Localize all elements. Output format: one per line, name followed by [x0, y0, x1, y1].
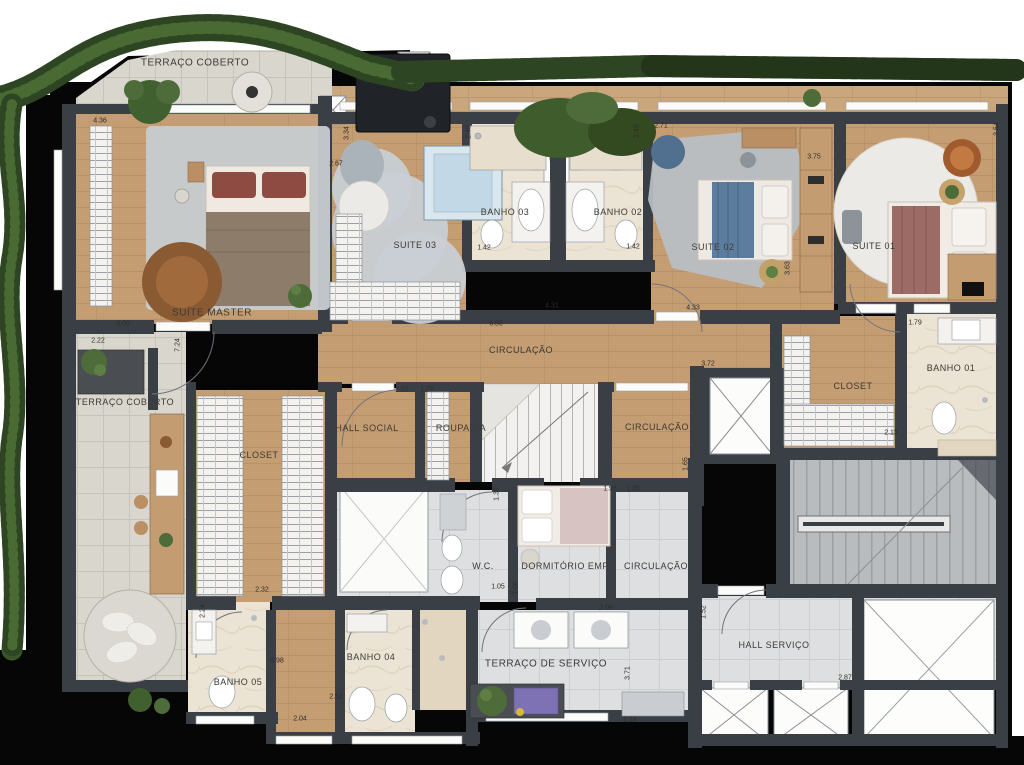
floor-plan: TERRAÇO COBERTOSUÍTE MASTERSUITE 03BANHO… [0, 0, 1024, 765]
armchair [651, 135, 685, 169]
pillow [212, 172, 256, 198]
wardrobe [330, 282, 460, 320]
wardrobe [90, 126, 112, 306]
floor-plan-drawing [0, 0, 1024, 765]
lobby-floor [276, 592, 335, 742]
plant [128, 688, 152, 712]
side-chair [842, 210, 862, 244]
desk-chair [740, 152, 756, 168]
elevator-service-1 [700, 688, 768, 742]
hall-social-floor [337, 388, 417, 482]
elevator-service-2 [774, 688, 848, 742]
desk [742, 128, 796, 148]
dresser [336, 214, 362, 282]
pillow [262, 172, 306, 198]
shaft-box [340, 486, 428, 592]
suite02-furniture [648, 128, 832, 292]
floor-lamp [175, 189, 189, 203]
plant [477, 686, 507, 716]
shaft-room [864, 600, 994, 738]
wardrobe [800, 128, 832, 292]
